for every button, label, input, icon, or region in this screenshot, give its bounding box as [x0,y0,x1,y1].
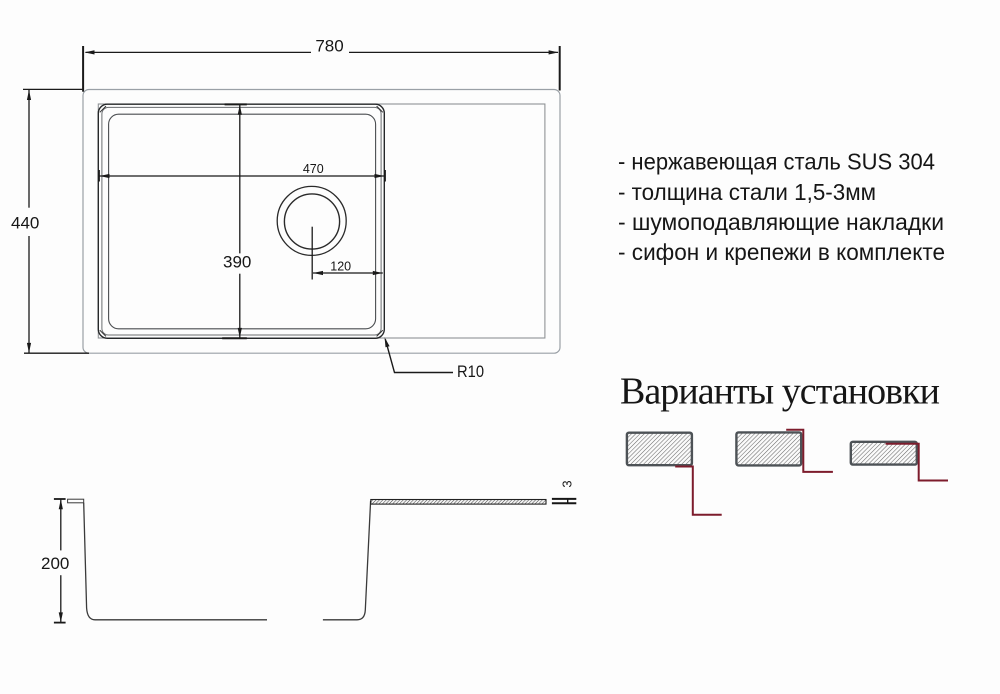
svg-text:390: 390 [223,252,251,271]
svg-text:- сифон и крепежи в комплекте: - сифон и крепежи в комплекте [618,239,945,265]
svg-text:200: 200 [41,554,69,573]
svg-text:3: 3 [559,480,574,487]
svg-text:R10: R10 [457,362,484,381]
svg-text:- толщина стали 1,5-3мм: - толщина стали 1,5-3мм [618,179,876,205]
svg-text:470: 470 [303,162,324,176]
svg-text:Варианты установки: Варианты установки [620,371,940,413]
svg-text:- шумоподавляющие накладки: - шумоподавляющие накладки [618,209,944,235]
svg-text:780: 780 [315,36,343,55]
svg-text:- нержавеющая сталь SUS 304: - нержавеющая сталь SUS 304 [618,149,935,175]
svg-text:440: 440 [11,214,39,233]
svg-text:120: 120 [330,259,351,273]
